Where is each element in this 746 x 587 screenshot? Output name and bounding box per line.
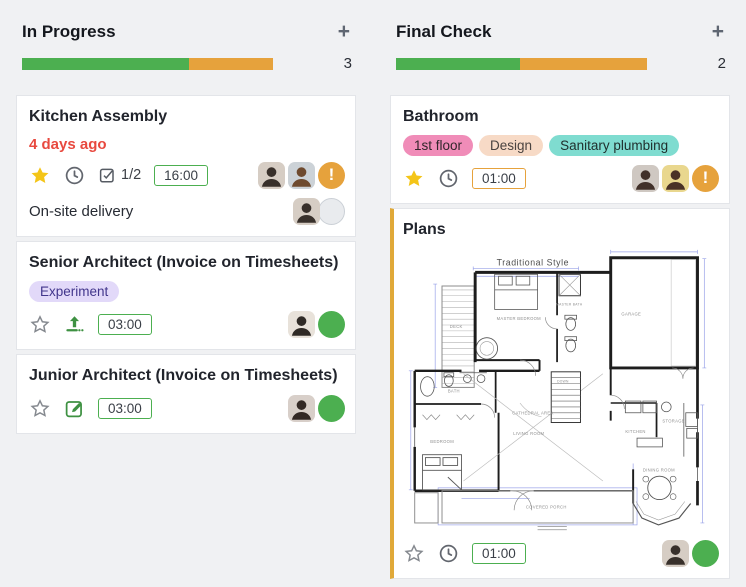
progress-orange-segment [189,58,273,70]
plan-room-label: STORAGE [662,418,684,423]
upload-icon[interactable] [64,314,85,335]
floor-plan-image: Traditional Style DECK MASTER BEDROOM MA… [403,247,719,532]
alert-badge[interactable]: ! [318,162,345,189]
progress-green-segment [396,58,520,70]
column-in-progress: In Progress + 3 Kitchen Assembly 4 days … [16,16,356,579]
subtask-title: On-site delivery [29,203,133,220]
plan-room-label: CATHEDRAL AREA [512,410,553,415]
status-incomplete-circle[interactable] [318,198,345,225]
alert-badge[interactable]: ! [692,165,719,192]
due-date-label: 4 days ago [29,136,345,153]
avatar[interactable] [662,165,689,192]
clock-icon[interactable] [438,168,459,189]
avatar[interactable] [258,162,285,189]
assignee-cluster [662,540,719,567]
card-junior-architect[interactable]: Junior Architect (Invoice on Timesheets)… [16,354,356,435]
subtask-row[interactable]: On-site delivery [29,198,345,225]
star-outline-icon[interactable] [403,543,425,564]
status-complete-circle[interactable] [692,540,719,567]
column-progress-row: 2 [396,55,726,72]
plan-room-label: MASTER BEDROOM [497,316,542,321]
star-icon[interactable] [403,168,425,189]
avatar[interactable] [288,162,315,189]
assignee-cluster: ! [632,165,719,192]
plan-room-label: KITCHEN [625,429,645,434]
card-meta-row: 1/2 16:00 ! [29,162,345,189]
plan-room-label: COVERED PORCH [526,504,567,509]
plan-stairs-label: DOWN [557,379,569,383]
card-title: Kitchen Assembly [29,107,345,128]
star-icon[interactable] [29,165,51,186]
tag-row: 1st floor Design Sanitary plumbing [403,135,719,156]
tag-sanitary-plumbing: Sanitary plumbing [549,135,679,156]
avatar[interactable] [288,311,315,338]
card-bathroom[interactable]: Bathroom 1st floor Design Sanitary plumb… [390,95,730,204]
card-meta-row: 03:00 [29,311,345,338]
card-stack: Kitchen Assembly 4 days ago 1/2 [16,95,356,434]
card-meta-row: 03:00 [29,395,345,422]
plan-style-label: Traditional Style [497,257,569,267]
column-header: Final Check + [396,22,726,42]
status-complete-circle[interactable] [318,311,345,338]
kanban-board: In Progress + 3 Kitchen Assembly 4 days … [0,0,746,587]
card-title: Bathroom [403,107,719,128]
time-estimate-badge[interactable]: 16:00 [154,165,208,186]
column-title: In Progress [22,22,116,42]
card-senior-architect[interactable]: Senior Architect (Invoice on Timesheets)… [16,241,356,350]
assignee-cluster [288,311,345,338]
edit-icon[interactable] [64,398,85,419]
add-card-button[interactable]: + [336,23,352,41]
column-card-count: 2 [718,55,726,72]
status-complete-circle[interactable] [318,395,345,422]
time-estimate-badge[interactable]: 03:00 [98,398,152,419]
card-plans[interactable]: Plans [390,208,730,580]
tag-1st-floor: 1st floor [403,135,473,156]
card-title: Senior Architect (Invoice on Timesheets) [29,253,345,274]
avatar[interactable] [662,540,689,567]
plan-room-label: GARAGE [621,311,641,316]
plan-room-label: BATH [448,388,460,393]
assignee-cluster [288,395,345,422]
card-stack: Bathroom 1st floor Design Sanitary plumb… [390,95,730,579]
column-progress-bar [22,58,273,70]
tag-design: Design [479,135,543,156]
avatar[interactable] [288,395,315,422]
star-outline-icon[interactable] [29,398,51,419]
plan-room-label: DINING ROOM [643,467,675,472]
avatar[interactable] [632,165,659,192]
column-progress-bar [396,58,647,70]
progress-orange-segment [520,58,647,70]
plan-room-label: MASTER BATH [556,302,583,306]
card-meta-row: 01:00 ! [403,165,719,192]
avatar[interactable] [293,198,320,225]
tag-experiment: Experiment [29,281,119,302]
plan-room-label: DECK [450,324,463,329]
tag-row: Experiment [29,281,345,302]
column-final-check: Final Check + 2 Bathroom 1st floor Desig… [390,16,730,579]
card-title: Plans [403,220,719,241]
checklist-count: 1/2 [121,167,141,183]
time-estimate-badge[interactable]: 01:00 [472,543,526,564]
column-progress-row: 3 [22,55,352,72]
add-card-button[interactable]: + [710,23,726,41]
plan-room-label: BEDROOM [430,439,454,444]
column-header: In Progress + [22,22,352,42]
column-card-count: 3 [344,55,352,72]
star-outline-icon[interactable] [29,314,51,335]
card-kitchen-assembly[interactable]: Kitchen Assembly 4 days ago 1/2 [16,95,356,237]
column-title: Final Check [396,22,491,42]
clock-icon[interactable] [64,165,85,186]
clock-icon[interactable] [438,543,459,564]
time-estimate-badge[interactable]: 01:00 [472,168,526,189]
assignee-cluster: ! [258,162,345,189]
card-title: Junior Architect (Invoice on Timesheets) [29,366,345,387]
checklist-progress: 1/2 [98,166,141,184]
plan-room-label: LIVING ROOM [513,431,544,436]
subtask-assignee-cluster [293,198,345,225]
card-meta-row: 01:00 [403,540,719,567]
time-estimate-badge[interactable]: 03:00 [98,314,152,335]
checkbox-icon [98,166,116,184]
progress-green-segment [22,58,189,70]
